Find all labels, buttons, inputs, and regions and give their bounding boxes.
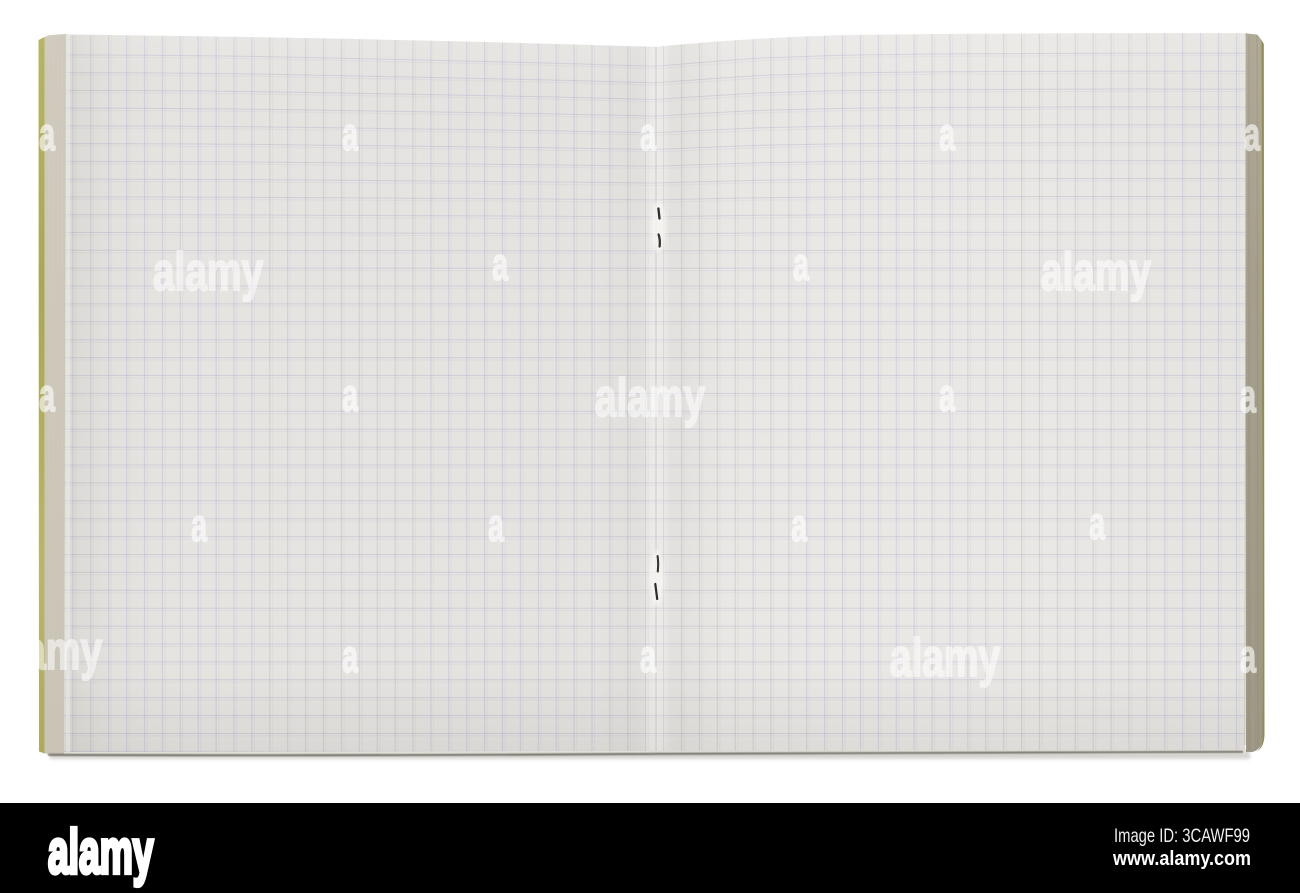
svg-text:a: a	[939, 370, 955, 422]
svg-text:a: a	[1240, 371, 1256, 423]
svg-text:www.alamy.com: www.alamy.com	[1112, 848, 1251, 870]
svg-text:a: a	[39, 109, 55, 161]
svg-text:a: a	[488, 500, 504, 552]
svg-text:a: a	[793, 239, 809, 291]
svg-text:a: a	[191, 500, 207, 552]
svg-text:a: a	[939, 109, 955, 161]
svg-text:a: a	[1240, 631, 1256, 683]
svg-text:a: a	[791, 500, 807, 552]
svg-text:a: a	[39, 370, 55, 422]
svg-text:alamy: alamy	[890, 627, 1000, 688]
svg-text:a: a	[640, 631, 656, 683]
svg-text:a: a	[342, 109, 358, 161]
svg-text:a: a	[1089, 498, 1105, 550]
svg-text:a: a	[1244, 109, 1260, 161]
svg-text:alamy: alamy	[153, 241, 263, 302]
svg-text:alamy: alamy	[0, 620, 102, 681]
svg-text:Image ID: 3CAWF99: Image ID: 3CAWF99	[1114, 825, 1250, 846]
svg-text:a: a	[342, 370, 358, 422]
svg-text:a: a	[492, 239, 508, 291]
svg-text:alamy: alamy	[48, 817, 154, 886]
svg-text:alamy: alamy	[1041, 241, 1151, 302]
svg-text:a: a	[342, 631, 358, 683]
svg-text:alamy: alamy	[595, 367, 705, 428]
svg-text:a: a	[640, 109, 656, 161]
